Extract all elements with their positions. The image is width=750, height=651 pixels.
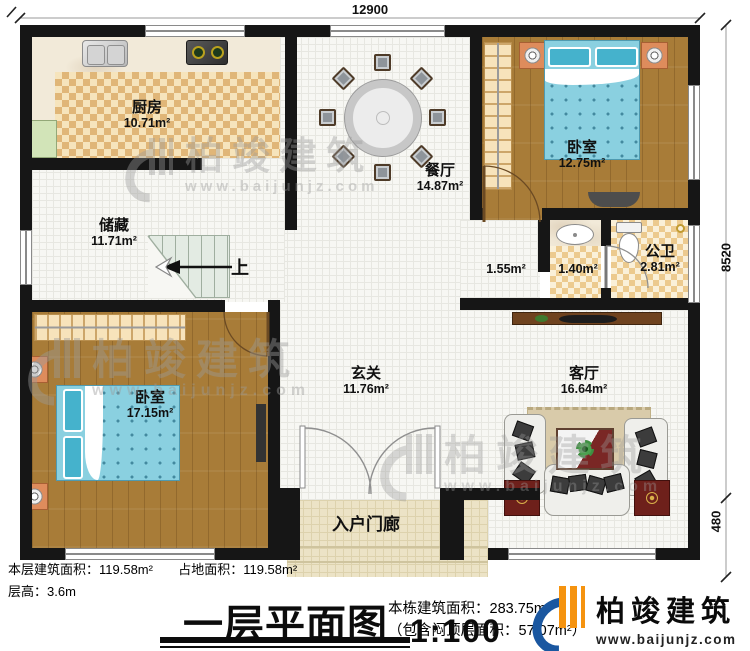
sofa-cushion <box>515 441 536 460</box>
room-name: 餐厅 <box>417 163 464 179</box>
stairs-up-label: 上 <box>231 254 249 280</box>
sofa-bottom <box>544 464 630 516</box>
wall <box>276 488 300 560</box>
plant-leaf <box>535 315 548 322</box>
stove <box>186 40 228 65</box>
bathroom-label: 公卫 2.81m² <box>640 244 680 274</box>
wall <box>464 488 540 500</box>
room-area: 11.71m² <box>91 234 137 248</box>
room-area: 10.71m² <box>124 116 171 130</box>
room-area: 16.64m² <box>561 382 608 396</box>
sofa-cushion <box>512 420 534 441</box>
living-label: 客厅 16.64m² <box>561 366 608 396</box>
storage-label: 储藏 11.71m² <box>91 218 137 248</box>
basin-drain <box>573 233 577 237</box>
sofa-cushion <box>636 449 657 469</box>
dining-chair <box>374 54 391 71</box>
room-name: 卧室 <box>127 390 174 406</box>
floor-height-text: 层高：3.6m <box>8 584 76 599</box>
window <box>65 548 215 560</box>
porch-step-line <box>287 561 488 563</box>
plan-scale: 1:100 <box>410 613 502 650</box>
room-area: 17.15m² <box>127 406 174 420</box>
floor-height-annotation: 层高：3.6m <box>8 582 76 602</box>
kitchen-sink <box>82 40 128 67</box>
nightstand <box>519 42 546 69</box>
window <box>20 230 32 285</box>
bedroom-top-label: 卧室 12.75m² <box>559 140 606 170</box>
dim-tick <box>721 20 731 30</box>
window <box>330 25 445 37</box>
wall <box>538 220 550 272</box>
brand-name: 柏竣建筑 <box>596 588 737 630</box>
toilet-tank <box>616 222 642 233</box>
land-area-text: 占地面积：119.58m² <box>178 562 297 577</box>
area-annotations: 本层建筑面积：119.58m² 占地面积：119.58m² <box>8 560 297 580</box>
bedroom-bottom-label: 卧室 17.15m² <box>127 390 174 420</box>
kitchen-label: 厨房 10.71m² <box>124 100 171 130</box>
dresser <box>588 192 640 207</box>
pillow <box>63 389 83 432</box>
bed-sheet-fold <box>85 386 103 480</box>
wall <box>285 37 297 230</box>
brand-logo-icon <box>534 586 588 646</box>
dining-chair <box>374 164 391 181</box>
dining-table-center <box>376 111 390 125</box>
wall <box>460 298 690 310</box>
room-area: 11.76m² <box>343 382 389 396</box>
tv <box>559 315 617 323</box>
dim-tick <box>15 13 25 23</box>
dim-tick <box>695 13 705 23</box>
towel-ring <box>676 224 685 233</box>
window <box>688 85 700 180</box>
room-name: 入户门廊 <box>332 517 400 533</box>
title-underline-thick <box>160 637 410 643</box>
pillow <box>63 436 83 479</box>
wardrobe <box>484 42 512 190</box>
tv-cabinet <box>512 312 662 325</box>
window <box>688 225 700 303</box>
wall <box>470 37 482 220</box>
wall <box>470 208 484 220</box>
foyer-label: 玄关 11.76m² <box>343 366 389 396</box>
wardrobe <box>34 314 186 341</box>
sofa-cushion <box>550 476 571 495</box>
wall <box>20 25 32 560</box>
tv <box>256 404 266 462</box>
dimension-top: 12900 <box>330 2 410 17</box>
title-underline-thin <box>160 646 410 648</box>
washbasin <box>556 224 594 245</box>
room-name: 储藏 <box>91 218 137 234</box>
sofa-cushion <box>635 426 657 447</box>
dim-tick <box>721 572 731 582</box>
dim-tick <box>7 7 16 17</box>
brand-block: 柏竣建筑 www.baijunjz.com <box>596 588 737 647</box>
dimension-right-lower: 480 <box>709 500 724 544</box>
wall <box>601 288 611 298</box>
wall <box>440 488 464 560</box>
lobby-area-label: 1.55m² <box>486 262 526 276</box>
dining-table <box>345 80 421 156</box>
dining-label: 餐厅 14.87m² <box>417 163 464 193</box>
coffee-table <box>556 428 614 470</box>
side-table <box>634 480 670 516</box>
wall <box>542 208 700 220</box>
sink-basin <box>107 45 125 65</box>
floor-area-text: 本层建筑面积：119.58m² <box>8 562 153 577</box>
wall <box>601 220 611 246</box>
window <box>508 548 656 560</box>
pillow <box>548 47 591 67</box>
floor-plan-canvas: 上 <box>0 0 750 651</box>
wall <box>32 158 202 170</box>
room-name: 卧室 <box>559 140 606 156</box>
room-name: 客厅 <box>561 366 608 382</box>
washbasin-area-label: 1.40m² <box>558 262 598 276</box>
room-name: 玄关 <box>343 366 389 382</box>
room-name: 公卫 <box>640 244 680 260</box>
table-plant <box>576 440 594 458</box>
nightstand <box>641 42 668 69</box>
burner <box>192 46 205 59</box>
lobby-floor <box>460 220 540 300</box>
burner <box>211 46 224 59</box>
dining-chair <box>429 109 446 126</box>
room-area: 12.75m² <box>559 156 606 170</box>
dining-chair <box>319 109 336 126</box>
window <box>145 25 245 37</box>
wall <box>20 300 225 312</box>
room-area: 2.81m² <box>640 260 680 274</box>
brand-website: www.baijunjz.com <box>596 632 737 647</box>
pillow <box>595 47 638 67</box>
room-name: 厨房 <box>124 100 171 116</box>
room-area: 14.87m² <box>417 179 464 193</box>
dimension-right-upper: 8520 <box>719 230 734 286</box>
porch-label: 入户门廊 <box>332 517 400 533</box>
sofa-cushion <box>603 473 624 493</box>
sink-basin <box>87 45 105 65</box>
